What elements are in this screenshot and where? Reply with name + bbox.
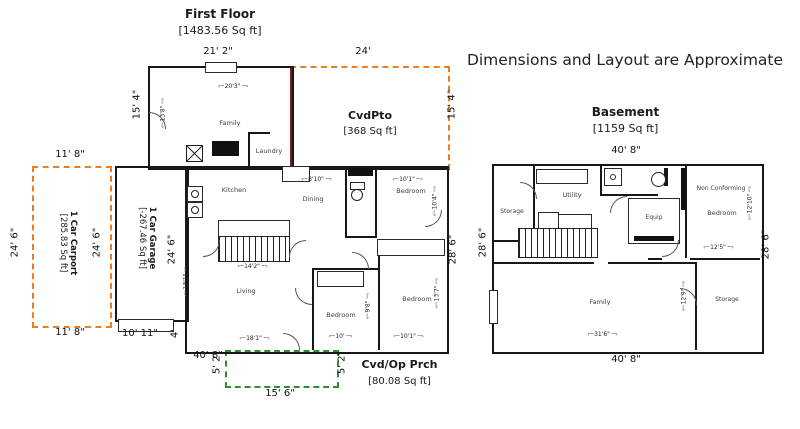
room-label-dining: Dining bbox=[290, 196, 336, 203]
dim-top-cvdpto: 24' bbox=[328, 46, 398, 58]
dim-basement-top: 40' 8" bbox=[592, 145, 660, 157]
approximate-annotation: Dimensions and Layout are Approximate bbox=[455, 52, 795, 70]
carport-label: 1 Car Carport [285.83 Sq ft] bbox=[58, 168, 78, 318]
dim-ncbr-width: 12'5" bbox=[684, 244, 752, 251]
porch-title: Cvd/Op Prch bbox=[352, 359, 447, 372]
window-box bbox=[186, 145, 203, 162]
closet bbox=[218, 220, 290, 237]
dim-stoop: 4' bbox=[170, 322, 181, 346]
window-box bbox=[489, 290, 498, 324]
wall bbox=[648, 258, 662, 260]
dim-value: 12'10" bbox=[747, 194, 754, 214]
wall bbox=[608, 262, 695, 264]
dim-value: 10'1" bbox=[399, 176, 415, 183]
dim-living-height: 13'1" bbox=[183, 257, 190, 307]
dim-value: 10'1" bbox=[400, 333, 416, 340]
dim-value: 10'4" bbox=[432, 194, 439, 210]
dim-value: 31'6" bbox=[594, 331, 610, 338]
dim-bedroom-br-width: 10'1" bbox=[378, 333, 438, 340]
equip-unit bbox=[634, 236, 674, 241]
closet bbox=[377, 239, 445, 256]
porch-area: [80.08 Sq ft] bbox=[352, 376, 447, 388]
stairs-first-floor bbox=[218, 236, 290, 262]
cabinet bbox=[538, 212, 559, 229]
dim-ncbr-height: 12'10" bbox=[747, 179, 754, 229]
dim-basement-family-height: 12'9" bbox=[681, 272, 688, 322]
dim-basement-family-width: 31'6" bbox=[552, 331, 652, 338]
wall-thick bbox=[681, 168, 686, 210]
first-floor-area: [1483.56 Sq ft] bbox=[150, 25, 290, 38]
wall bbox=[312, 268, 380, 270]
room-label-utility: Utility bbox=[548, 192, 596, 199]
bay-window bbox=[205, 62, 237, 73]
fireplace bbox=[212, 141, 239, 156]
room-label-nc-line2: Bedroom bbox=[694, 210, 750, 217]
burner bbox=[191, 206, 199, 214]
dim-value: 12'5" bbox=[710, 244, 726, 251]
dim-bedroom-tr-width: 10'1" bbox=[377, 176, 437, 183]
dim-value: 18'1" bbox=[246, 335, 262, 342]
room-label-storage-br: Storage bbox=[702, 297, 752, 304]
stairs-basement bbox=[518, 228, 598, 258]
dim-value: 8'10" bbox=[308, 176, 324, 183]
dim-ff-bottom: 40' 8" bbox=[176, 350, 240, 362]
dim-family-width: 20'3" bbox=[185, 83, 280, 90]
dim-top-main: 21' 2" bbox=[168, 46, 268, 58]
dim-porch-right: 5' 2" bbox=[337, 343, 348, 383]
room-label-basement-family: Family bbox=[572, 299, 628, 306]
dim-value: 13'8" bbox=[160, 106, 167, 122]
carport-title: 1 Car Carport bbox=[68, 168, 78, 318]
dim-garage-right: 24' 6" bbox=[167, 225, 178, 275]
dim-value: 13'7" bbox=[434, 286, 441, 302]
dim-basement-left: 28' 6" bbox=[478, 218, 489, 268]
room-label-living: Living bbox=[218, 288, 274, 295]
dim-value: 13'1" bbox=[183, 274, 190, 290]
dim-carport-inner: 24' 6" bbox=[92, 218, 103, 268]
dim-bedroom-bl-width: 10' bbox=[314, 333, 366, 340]
dim-ff-right-lower: 28' 6" bbox=[448, 225, 459, 275]
dim-dining-width: 8'10" bbox=[287, 176, 345, 183]
closet bbox=[317, 271, 364, 287]
shelf bbox=[536, 169, 588, 184]
room-label-family: Family bbox=[200, 120, 260, 127]
room-label-nc-line1: Non Conforming bbox=[688, 186, 754, 193]
garage-area: [-267.46 Sq ft] bbox=[137, 163, 147, 313]
dim-value: 10' bbox=[335, 333, 344, 340]
dim-driveway: 10' 11" bbox=[108, 328, 172, 340]
dim-porch-bottom: 15' 6" bbox=[248, 388, 312, 400]
wall bbox=[248, 132, 270, 134]
dim-value: 14'2" bbox=[244, 263, 260, 270]
burner bbox=[191, 190, 199, 198]
room-label-storage-tl: Storage bbox=[492, 209, 532, 216]
cabinet bbox=[558, 214, 592, 229]
wall bbox=[690, 258, 760, 260]
room-label-bedroom-bl: Bedroom bbox=[316, 312, 366, 319]
cvdpto-area: [368 Sq ft] bbox=[325, 126, 415, 138]
wall bbox=[494, 262, 594, 264]
dim-carport-bottom: 11' 8" bbox=[38, 327, 102, 339]
dim-kitchen-width: 14'2" bbox=[208, 263, 296, 270]
dim-left-upper: 15' 4" bbox=[132, 80, 143, 130]
dim-bedroom-br-height: 13'7" bbox=[434, 269, 441, 319]
toilet bbox=[651, 172, 666, 187]
porch-outline bbox=[225, 350, 339, 388]
cvdpto-title: CvdPto bbox=[325, 110, 415, 123]
wall bbox=[600, 164, 602, 194]
floorplan-canvas: First Floor [1483.56 Sq ft] 21' 2" 24' D… bbox=[0, 0, 800, 429]
garage-title: 1 Car Garage bbox=[147, 163, 157, 313]
basement-area: [1159 Sq ft] bbox=[558, 123, 693, 136]
dim-value: 9'8" bbox=[365, 300, 372, 312]
room-label-laundry: Laundry bbox=[248, 148, 290, 155]
dim-value: 20'3" bbox=[225, 83, 241, 90]
vanity bbox=[348, 168, 373, 176]
dim-bedroom-bl-height: 9'8" bbox=[365, 285, 372, 329]
basement-title: Basement bbox=[558, 106, 693, 120]
dim-basement-right: 28' 6" bbox=[761, 220, 772, 270]
wall bbox=[345, 166, 347, 238]
wall bbox=[695, 262, 697, 350]
dim-basement-bottom: 40' 8" bbox=[592, 354, 660, 366]
garage-label: 1 Car Garage [-267.46 Sq ft] bbox=[137, 163, 157, 313]
dim-carport-left: 24' 6" bbox=[10, 218, 21, 268]
room-label-kitchen: Kitchen bbox=[208, 187, 260, 194]
wall bbox=[600, 194, 658, 196]
dim-living-width: 18'1" bbox=[200, 335, 308, 342]
toilet bbox=[351, 189, 363, 201]
dim-bedroom-tr-height: 10'4" bbox=[432, 177, 439, 227]
room-label-equip: Equip bbox=[634, 215, 674, 222]
dim-value: 12'9" bbox=[681, 289, 688, 305]
first-floor-title: First Floor bbox=[150, 8, 290, 22]
wall bbox=[345, 236, 377, 238]
dim-right-cvdpto: 15' 4" bbox=[447, 80, 458, 130]
washer-dot bbox=[610, 174, 616, 180]
carport-area: [285.83 Sq ft] bbox=[58, 168, 68, 318]
dim-porch-left: 5' 2" bbox=[212, 343, 223, 383]
dim-family-height: 13'8" bbox=[160, 89, 167, 139]
dim-carport-top: 11' 8" bbox=[38, 149, 102, 161]
